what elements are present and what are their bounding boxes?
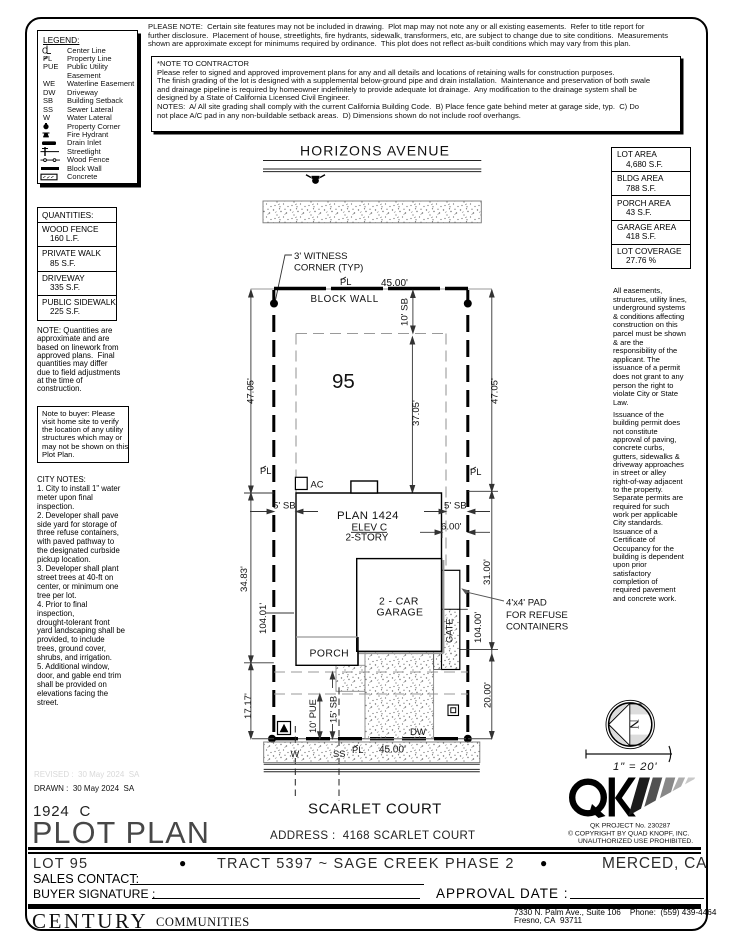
svg-text:2-STORY: 2-STORY	[346, 533, 389, 544]
svg-text:QK PROJECT No. 230287: QK PROJECT No. 230287	[590, 823, 671, 830]
svg-text:31.00': 31.00'	[482, 559, 493, 585]
svg-text:FOR REFUSE: FOR REFUSE	[506, 610, 568, 621]
svg-text:CONTAINERS: CONTAINERS	[506, 622, 568, 633]
svg-text:95: 95	[332, 370, 355, 393]
svg-text:3' WITNESS: 3' WITNESS	[294, 251, 348, 262]
svg-text:SCARLET COURT: SCARLET COURT	[308, 801, 442, 818]
svg-text:PL: PL	[340, 277, 351, 287]
svg-text:GATE: GATE	[445, 618, 455, 643]
svg-text:5' SB: 5' SB	[273, 501, 296, 512]
svg-text:2 - CAR: 2 - CAR	[379, 597, 419, 608]
svg-text:1" = 20': 1" = 20'	[613, 761, 657, 773]
svg-text:CORNER (TYP): CORNER (TYP)	[294, 263, 363, 274]
svg-text:10' SB: 10' SB	[400, 298, 411, 326]
svg-text:N: N	[626, 719, 641, 729]
svg-text:45.00': 45.00'	[381, 278, 408, 289]
svg-text:4'x4' PAD: 4'x4' PAD	[506, 598, 547, 609]
svg-text:PL: PL	[470, 467, 481, 477]
svg-text:UNAUTHORIZED USE PROHIBITED.: UNAUTHORIZED USE PROHIBITED.	[578, 838, 693, 845]
svg-text:GARAGE: GARAGE	[377, 608, 424, 619]
svg-text:HORIZONS AVENUE: HORIZONS AVENUE	[300, 143, 450, 159]
svg-text:PLAN 1424: PLAN 1424	[337, 510, 399, 522]
svg-text:© COPYRIGHT BY QUAD KNOPF, INC: © COPYRIGHT BY QUAD KNOPF, INC.	[568, 830, 690, 838]
svg-text:BLOCK WALL: BLOCK WALL	[311, 294, 379, 305]
svg-text:PL: PL	[260, 466, 271, 476]
svg-text:15' SB: 15' SB	[329, 696, 339, 723]
svg-text:10' PUE: 10' PUE	[308, 699, 318, 733]
svg-text:37.05': 37.05'	[411, 400, 422, 426]
svg-text:104.01': 104.01'	[258, 603, 269, 634]
svg-text:104.00': 104.00'	[473, 612, 484, 643]
svg-text:AC: AC	[311, 479, 324, 490]
svg-text:DW: DW	[410, 727, 427, 738]
svg-text:47.05': 47.05'	[490, 378, 501, 404]
svg-text:47.05': 47.05'	[246, 378, 257, 404]
svg-text:6.00': 6.00'	[441, 522, 462, 533]
svg-text:5' SB: 5' SB	[444, 501, 467, 512]
svg-text:17.17': 17.17'	[243, 693, 254, 719]
svg-text:34.83': 34.83'	[239, 566, 250, 592]
svg-text:20.00': 20.00'	[483, 682, 494, 708]
svg-text:PORCH: PORCH	[310, 649, 350, 660]
